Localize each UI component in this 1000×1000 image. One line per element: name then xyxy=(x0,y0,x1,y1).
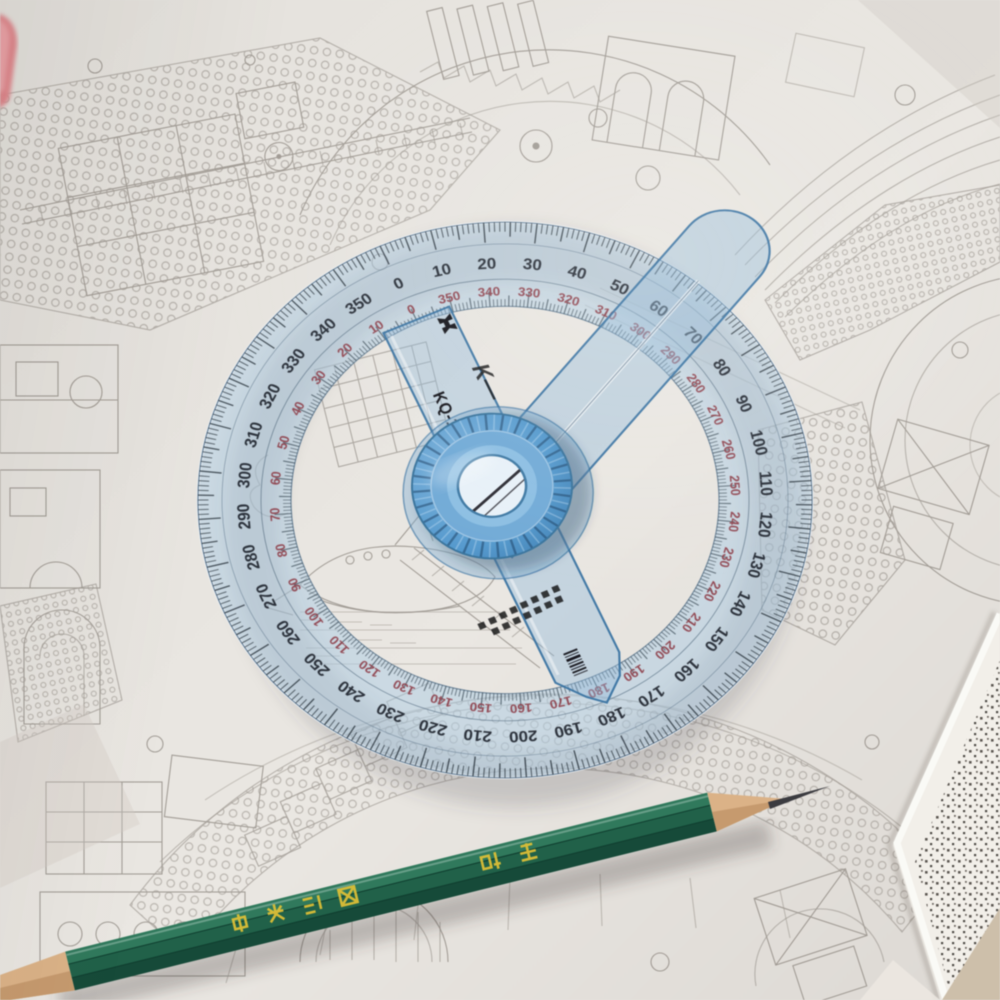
pencil-tip-right xyxy=(768,786,830,809)
pencil[interactable] xyxy=(0,0,1000,1000)
pencil-shadow xyxy=(60,834,770,1000)
pencil-body[interactable] xyxy=(0,786,830,1000)
photo-of-protractor-on-drawing: 0102030405060708090100110120130140150160… xyxy=(0,0,1000,1000)
